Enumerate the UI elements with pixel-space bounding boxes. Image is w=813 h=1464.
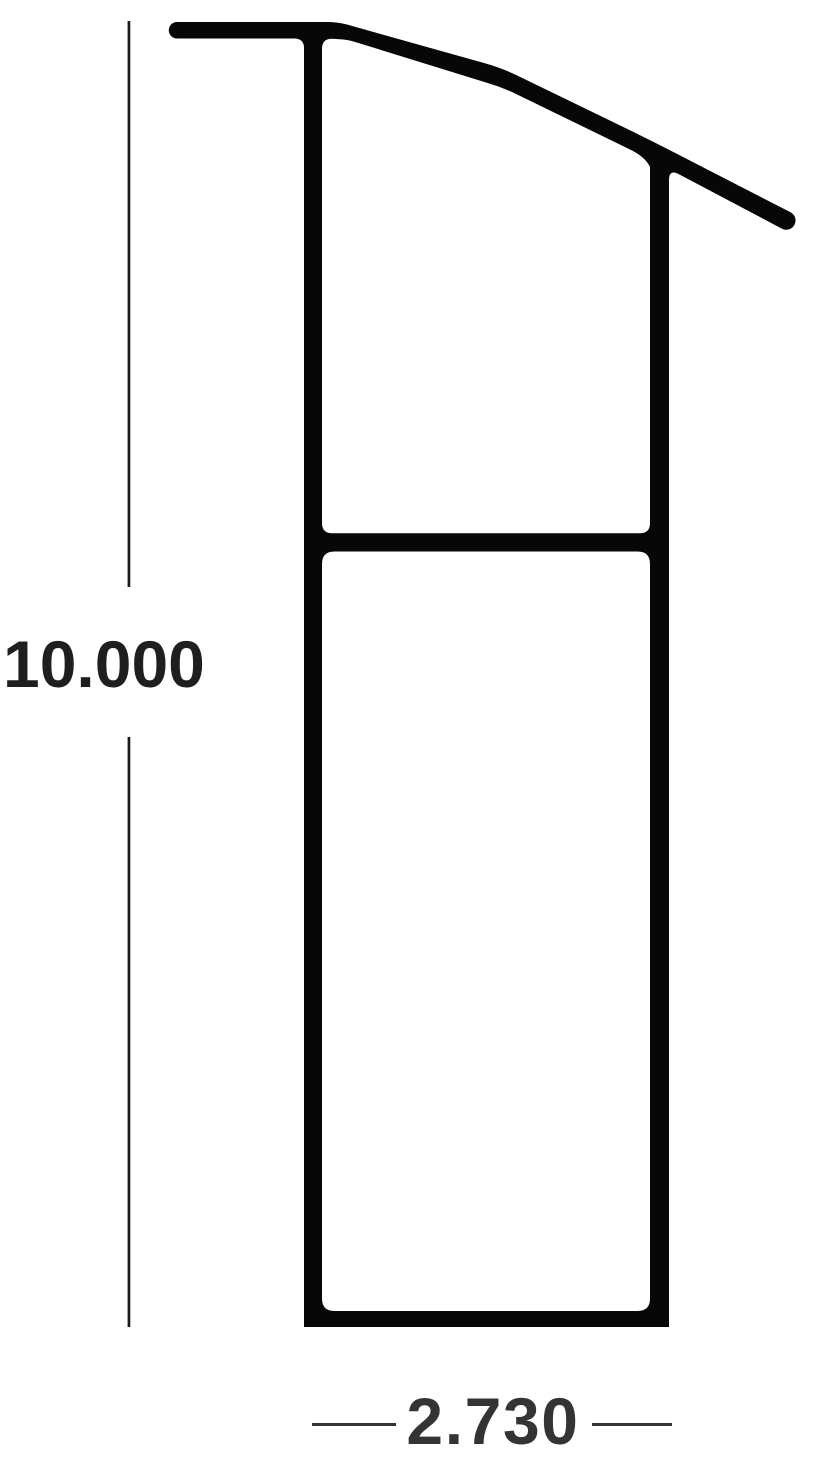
svg-text:10.000: 10.000 bbox=[3, 627, 205, 701]
svg-text:2.730: 2.730 bbox=[406, 1384, 579, 1458]
